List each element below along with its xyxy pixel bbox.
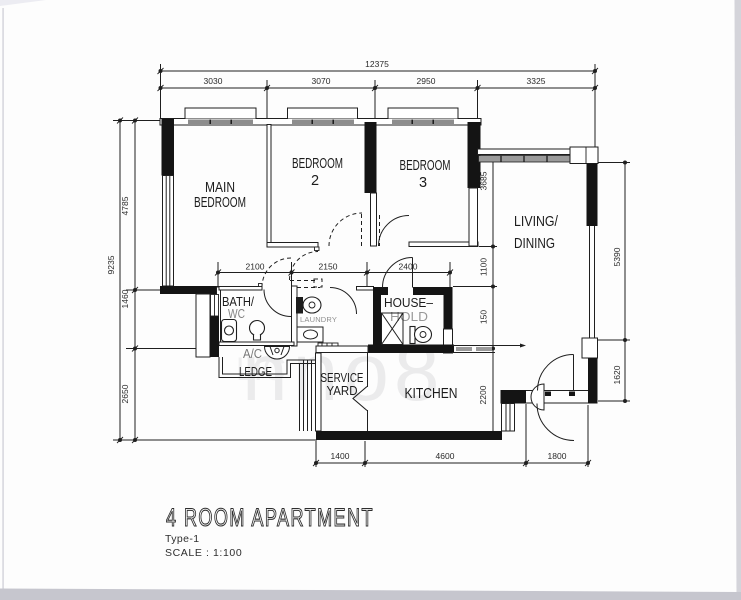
svg-text:3: 3 <box>419 175 427 191</box>
svg-text:1400: 1400 <box>331 451 350 461</box>
svg-text:3070: 3070 <box>312 76 331 86</box>
svg-text:150: 150 <box>479 310 489 324</box>
svg-text:BEDROOM: BEDROOM <box>194 195 246 211</box>
svg-text:BEDROOM: BEDROOM <box>400 158 451 174</box>
svg-text:2650: 2650 <box>120 384 130 403</box>
svg-text:A/C: A/C <box>243 347 262 361</box>
svg-text:2100: 2100 <box>246 262 265 272</box>
svg-text:4 ROOM APARTMENT: 4 ROOM APARTMENT <box>166 504 374 532</box>
svg-text:2950: 2950 <box>417 76 436 86</box>
svg-text:1100: 1100 <box>479 258 489 277</box>
svg-text:WC: WC <box>228 307 245 321</box>
svg-text:MAIN: MAIN <box>205 180 235 196</box>
svg-text:12375: 12375 <box>365 59 389 69</box>
svg-text:SCALE : 1:100: SCALE : 1:100 <box>165 547 242 559</box>
svg-text:LAUNDRY: LAUNDRY <box>300 315 337 324</box>
svg-text:1620: 1620 <box>612 365 622 384</box>
svg-text:1800: 1800 <box>548 451 567 461</box>
svg-text:1460: 1460 <box>120 289 130 308</box>
svg-text:YARD: YARD <box>327 384 358 398</box>
svg-text:2400: 2400 <box>399 262 418 272</box>
svg-text:SERVICE: SERVICE <box>321 371 364 385</box>
svg-text:LEDGE: LEDGE <box>239 365 272 379</box>
svg-text:3325: 3325 <box>527 76 546 86</box>
svg-text:5390: 5390 <box>612 247 622 266</box>
svg-text:HOUSE–: HOUSE– <box>384 296 433 310</box>
svg-text:4600: 4600 <box>436 451 455 461</box>
svg-text:BEDROOM: BEDROOM <box>292 156 343 172</box>
svg-text:LIVING/: LIVING/ <box>514 214 559 230</box>
svg-text:3030: 3030 <box>204 76 223 86</box>
svg-text:2200: 2200 <box>478 385 488 404</box>
svg-text:4785: 4785 <box>120 196 130 215</box>
svg-text:2: 2 <box>311 173 319 189</box>
svg-text:KITCHEN: KITCHEN <box>405 386 458 402</box>
svg-text:2150: 2150 <box>319 262 338 272</box>
svg-text:Type-1: Type-1 <box>165 533 200 545</box>
svg-text:DINING: DINING <box>514 236 555 252</box>
svg-text:9235: 9235 <box>106 255 116 274</box>
svg-text:HOLD: HOLD <box>390 310 428 324</box>
